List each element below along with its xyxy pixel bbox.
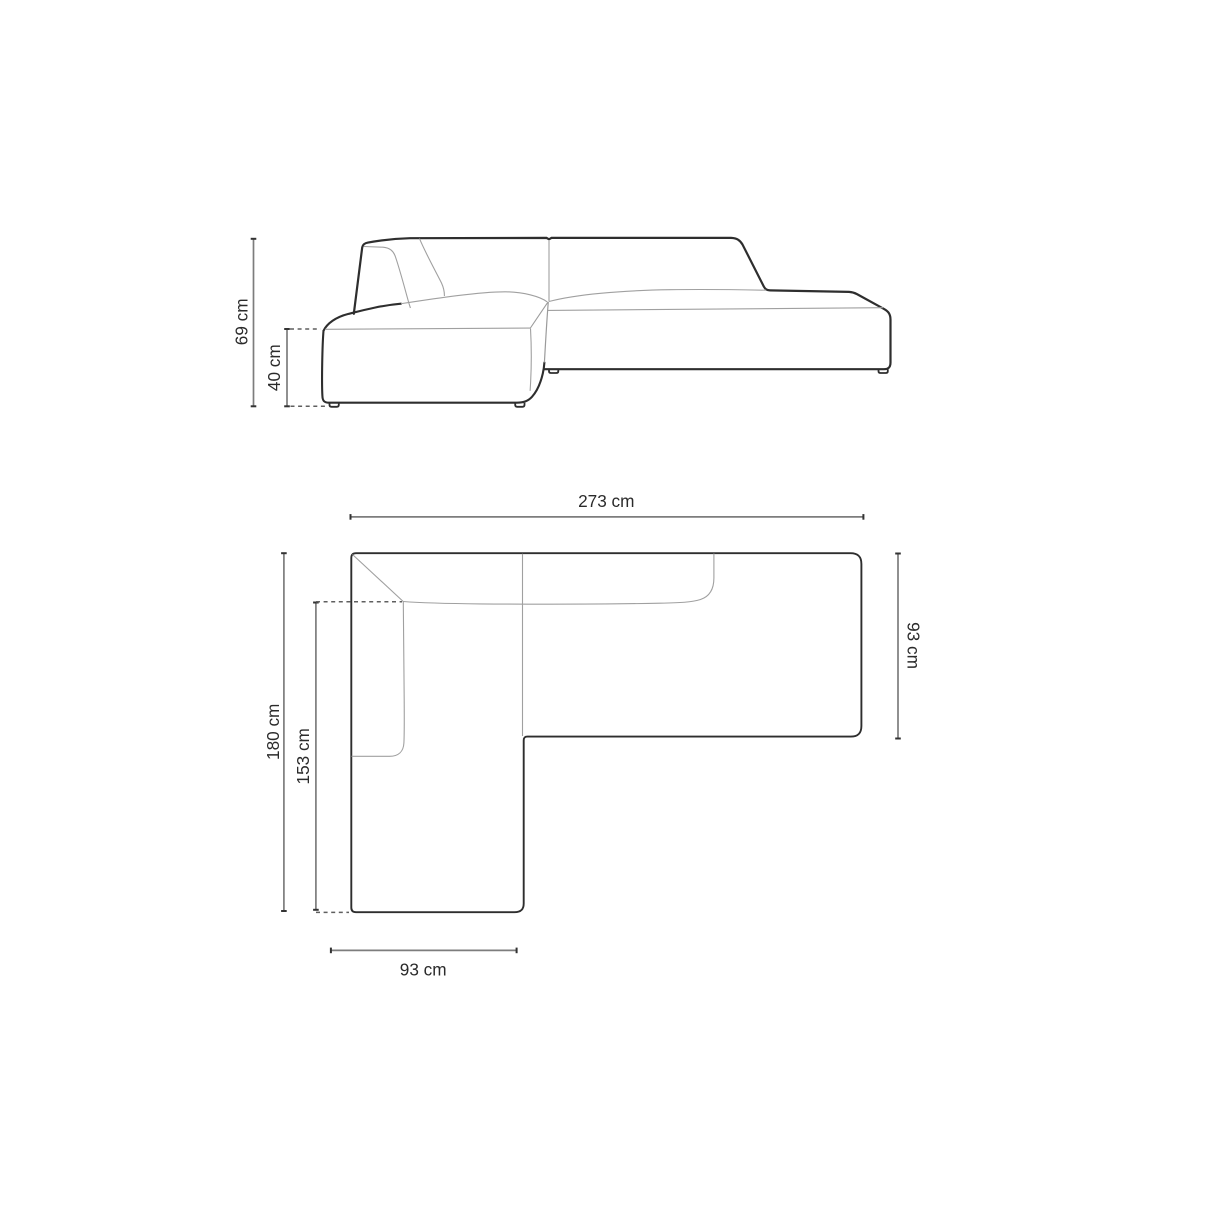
svg-text:40 cm: 40 cm bbox=[264, 344, 284, 391]
svg-text:153 cm: 153 cm bbox=[293, 728, 313, 784]
svg-text:180 cm: 180 cm bbox=[263, 704, 283, 760]
svg-text:273 cm: 273 cm bbox=[578, 491, 634, 511]
svg-text:69 cm: 69 cm bbox=[231, 298, 251, 345]
svg-text:93 cm: 93 cm bbox=[400, 960, 447, 980]
svg-text:93 cm: 93 cm bbox=[903, 622, 923, 669]
